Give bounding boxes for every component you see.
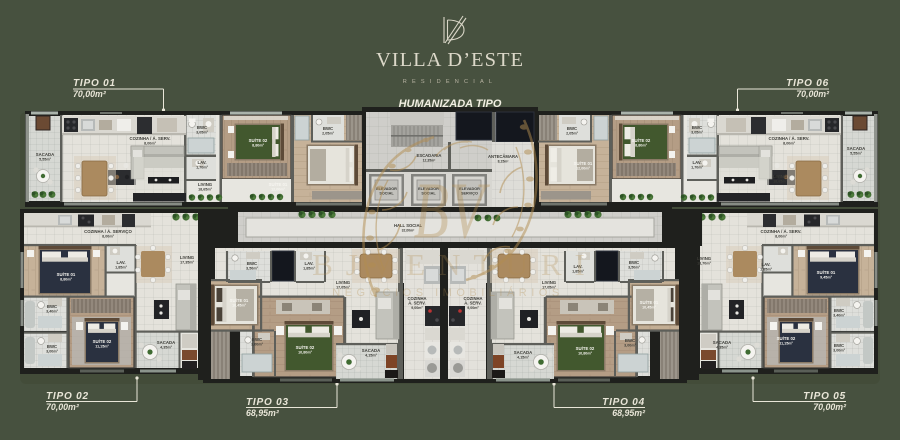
svg-text:3,40m²: 3,40m² bbox=[833, 314, 845, 318]
svg-text:TIPO 06: TIPO 06 bbox=[786, 78, 829, 89]
svg-text:4,35m²: 4,35m² bbox=[716, 346, 728, 350]
svg-text:BWC: BWC bbox=[834, 343, 844, 348]
svg-text:LIVING: LIVING bbox=[697, 256, 712, 261]
svg-text:SUÍTE 01: SUÍTE 01 bbox=[817, 270, 836, 275]
svg-text:68,95m²: 68,95m² bbox=[612, 408, 646, 418]
svg-text:SUÍTE 01: SUÍTE 01 bbox=[574, 161, 593, 166]
svg-text:SACADA: SACADA bbox=[847, 146, 865, 151]
svg-text:BJVENTURI: BJVENTURI bbox=[312, 247, 598, 282]
svg-text:VILLA D’ESTE: VILLA D’ESTE bbox=[376, 49, 524, 71]
svg-text:3,00m²: 3,00m² bbox=[624, 344, 636, 348]
svg-text:5,55m²: 5,55m² bbox=[39, 158, 51, 162]
svg-text:Á. SERV.: Á. SERV. bbox=[408, 301, 425, 306]
svg-text:70,00m²: 70,00m² bbox=[46, 402, 80, 412]
svg-text:3,05m²: 3,05m² bbox=[196, 131, 208, 135]
svg-text:Á. SERV.: Á. SERV. bbox=[464, 301, 481, 306]
svg-text:SUÍTE 02: SUÍTE 02 bbox=[296, 345, 315, 350]
svg-text:COZINHA / Á. SERV.: COZINHA / Á. SERV. bbox=[761, 229, 802, 234]
svg-text:8,00m²: 8,00m² bbox=[102, 235, 114, 239]
svg-text:BWC: BWC bbox=[47, 344, 57, 349]
svg-text:8,80m²: 8,80m² bbox=[60, 278, 72, 282]
svg-text:2,05m²: 2,05m² bbox=[566, 132, 578, 136]
svg-text:12,00m²: 12,00m² bbox=[271, 188, 286, 192]
svg-text:ANTECÂMARA: ANTECÂMARA bbox=[488, 154, 518, 159]
svg-text:TIPO 01: TIPO 01 bbox=[73, 78, 116, 89]
svg-text:12,35m²: 12,35m² bbox=[423, 158, 436, 162]
svg-text:3,00m²: 3,00m² bbox=[833, 349, 845, 353]
svg-text:3,00m²: 3,00m² bbox=[251, 343, 263, 347]
svg-text:2,05m²: 2,05m² bbox=[322, 132, 334, 136]
svg-text:SACADA: SACADA bbox=[713, 340, 731, 345]
svg-text:SUÍTE 02: SUÍTE 02 bbox=[777, 336, 796, 341]
svg-text:18,65m²: 18,65m² bbox=[773, 180, 788, 184]
svg-text:SUÍTE 02: SUÍTE 02 bbox=[632, 138, 651, 143]
svg-text:10,80m²: 10,80m² bbox=[298, 351, 313, 355]
svg-text:9,00m²: 9,00m² bbox=[411, 306, 423, 310]
svg-text:8,00m²: 8,00m² bbox=[144, 142, 156, 146]
svg-text:SUÍTE 02: SUÍTE 02 bbox=[576, 346, 595, 351]
svg-text:SACADA: SACADA bbox=[36, 152, 54, 157]
svg-text:TIPO 04: TIPO 04 bbox=[602, 397, 645, 408]
svg-text:3,05m²: 3,05m² bbox=[691, 131, 703, 135]
svg-text:COZINHA / Á. SERVIÇO: COZINHA / Á. SERVIÇO bbox=[84, 229, 132, 234]
svg-text:TIPO 05: TIPO 05 bbox=[803, 391, 846, 402]
svg-text:8,00m²: 8,00m² bbox=[775, 235, 787, 239]
svg-text:TIPO 02: TIPO 02 bbox=[46, 391, 89, 402]
svg-text:68,95m²: 68,95m² bbox=[246, 408, 280, 418]
svg-text:LAV.: LAV. bbox=[197, 160, 206, 165]
svg-text:70,00m²: 70,00m² bbox=[73, 89, 107, 99]
svg-text:11,15m²: 11,15m² bbox=[95, 345, 109, 349]
svg-text:SACADA: SACADA bbox=[514, 350, 532, 355]
svg-text:LIVING: LIVING bbox=[198, 182, 213, 187]
svg-text:17,35m²: 17,35m² bbox=[180, 261, 195, 265]
svg-text:BWC: BWC bbox=[323, 126, 333, 131]
svg-text:4,35m²: 4,35m² bbox=[160, 346, 172, 350]
svg-text:11,15m²: 11,15m² bbox=[779, 342, 793, 346]
svg-text:BWC: BWC bbox=[197, 125, 207, 130]
svg-text:8,80m²: 8,80m² bbox=[252, 144, 264, 148]
svg-text:9,45m²: 9,45m² bbox=[820, 276, 832, 280]
svg-text:SUÍTE 01: SUÍTE 01 bbox=[230, 298, 249, 303]
svg-text:BWC: BWC bbox=[625, 338, 635, 343]
svg-text:BWC: BWC bbox=[567, 126, 577, 131]
svg-text:1,70m²: 1,70m² bbox=[691, 166, 703, 170]
svg-text:SUÍTE 02: SUÍTE 02 bbox=[249, 138, 268, 143]
svg-text:LIVING: LIVING bbox=[180, 255, 195, 260]
svg-text:3,00m²: 3,00m² bbox=[46, 350, 58, 354]
svg-text:BWC: BWC bbox=[247, 261, 257, 266]
svg-text:LIVING: LIVING bbox=[773, 174, 788, 179]
svg-text:10,45m²: 10,45m² bbox=[232, 304, 247, 308]
svg-text:SUÍTE 01: SUÍTE 01 bbox=[269, 182, 288, 187]
svg-text:BV: BV bbox=[414, 168, 491, 256]
svg-text:1,85m²: 1,85m² bbox=[115, 266, 127, 270]
svg-text:9,00m²: 9,00m² bbox=[467, 306, 479, 310]
svg-text:BWC: BWC bbox=[692, 125, 702, 130]
svg-text:COZINHA / Á. SERV.: COZINHA / Á. SERV. bbox=[130, 136, 171, 141]
svg-text:TIPO 03: TIPO 03 bbox=[246, 397, 289, 408]
svg-text:8,15m²: 8,15m² bbox=[498, 159, 510, 163]
svg-text:BWC: BWC bbox=[252, 337, 262, 342]
svg-text:70,00m²: 70,00m² bbox=[813, 402, 847, 412]
svg-text:BWC: BWC bbox=[629, 260, 639, 265]
svg-text:SUÍTE 01: SUÍTE 01 bbox=[57, 272, 76, 277]
svg-text:10,80m²: 10,80m² bbox=[578, 352, 593, 356]
svg-text:8,80m²: 8,80m² bbox=[635, 144, 647, 148]
svg-text:LAV.: LAV. bbox=[692, 160, 701, 165]
svg-text:18,70m²: 18,70m² bbox=[697, 262, 712, 266]
svg-text:18,65m²: 18,65m² bbox=[198, 188, 213, 192]
svg-text:SACADA: SACADA bbox=[157, 340, 175, 345]
svg-text:COZINHA / Á. SERV.: COZINHA / Á. SERV. bbox=[769, 136, 810, 141]
svg-text:10,45m²: 10,45m² bbox=[642, 306, 657, 310]
svg-text:LAV.: LAV. bbox=[116, 260, 125, 265]
svg-text:LAV.: LAV. bbox=[761, 262, 770, 267]
svg-text:3,50m²: 3,50m² bbox=[246, 267, 258, 271]
svg-text:BWC: BWC bbox=[47, 304, 57, 309]
svg-text:3,40m²: 3,40m² bbox=[46, 310, 58, 314]
svg-text:SUÍTE 01: SUÍTE 01 bbox=[640, 300, 659, 305]
svg-text:12,00m²: 12,00m² bbox=[576, 167, 591, 171]
svg-text:70,00m²: 70,00m² bbox=[796, 89, 830, 99]
svg-text:5,55m²: 5,55m² bbox=[850, 152, 862, 156]
svg-text:1,85m²: 1,85m² bbox=[760, 268, 772, 272]
svg-text:BWC: BWC bbox=[834, 308, 844, 313]
svg-text:1,70m²: 1,70m² bbox=[196, 166, 208, 170]
svg-text:NEGÓCIOS IMOBILIÁRIOS: NEGÓCIOS IMOBILIÁRIOS bbox=[332, 286, 563, 299]
svg-text:8,00m²: 8,00m² bbox=[783, 142, 795, 146]
svg-text:4,15m²: 4,15m² bbox=[365, 354, 377, 358]
svg-text:3,50m²: 3,50m² bbox=[628, 266, 640, 270]
svg-text:SACADA: SACADA bbox=[362, 348, 380, 353]
svg-text:4,15m²: 4,15m² bbox=[517, 356, 529, 360]
svg-text:RESIDENCIAL: RESIDENCIAL bbox=[403, 79, 498, 85]
svg-text:SUÍTE 02: SUÍTE 02 bbox=[93, 339, 112, 344]
